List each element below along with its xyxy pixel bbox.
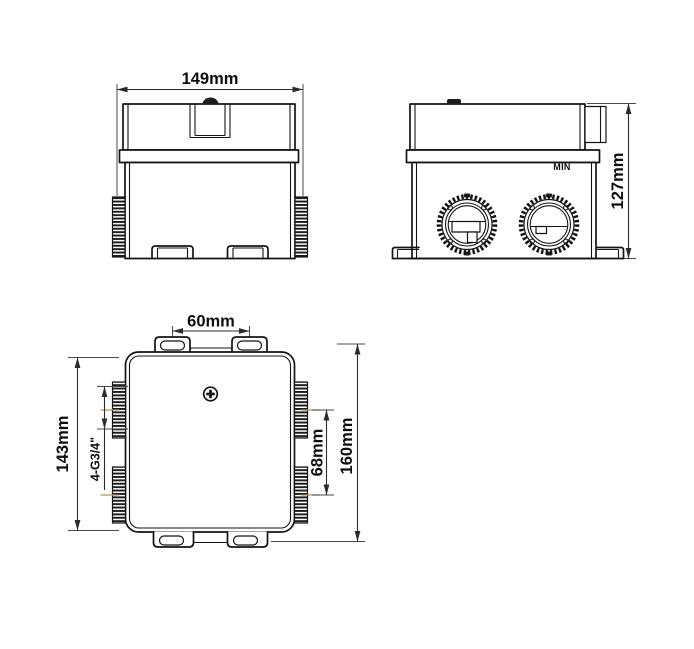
plan-view: 60mm xyxy=(54,313,365,548)
gland-detail xyxy=(452,222,480,233)
lid-hinge-block xyxy=(585,107,606,143)
lid-latch-icon xyxy=(447,99,461,105)
plan-box-outer xyxy=(126,352,295,532)
front-width-label: 149mm xyxy=(182,70,239,88)
lid-rim xyxy=(120,150,299,163)
overall-height-label: 160mm xyxy=(338,418,356,475)
gland-detail xyxy=(468,232,478,243)
lid-rim xyxy=(407,150,600,163)
mounting-slot xyxy=(161,341,185,350)
tab-spacing-label: 60mm xyxy=(187,313,235,331)
mounting-slot xyxy=(160,536,184,545)
body-height-label: 143mm xyxy=(54,416,72,473)
body-height-dimension: 143mm xyxy=(54,358,119,531)
side-lid xyxy=(410,104,585,150)
front-body xyxy=(125,163,295,259)
thread-label: 4-G3/4" xyxy=(89,437,103,481)
phillips-screw-icon xyxy=(204,387,218,401)
gland-spacing-dimension: 68mm xyxy=(309,410,335,495)
lid-screw-cap-icon xyxy=(203,98,219,105)
knurled-gland-edge xyxy=(295,197,308,257)
junction-box-drawing: 149mm xyxy=(0,0,694,649)
bottom-ledge xyxy=(194,532,228,543)
side-view: 127mm MIN xyxy=(393,99,637,259)
gland-detail xyxy=(536,227,547,234)
mounting-slot xyxy=(234,536,258,545)
technical-drawing-page: 149mm xyxy=(0,0,694,649)
mounting-slot xyxy=(238,341,262,350)
screw-cross xyxy=(206,393,215,396)
min-marking-label: MIN xyxy=(553,162,570,172)
gland-ring xyxy=(524,200,574,250)
side-height-label: 127mm xyxy=(609,153,627,210)
gland-spacing-label: 68mm xyxy=(309,429,327,477)
knurled-gland-edge xyxy=(113,197,126,257)
front-lid xyxy=(123,104,295,150)
side-foot xyxy=(597,248,624,259)
front-view: 149mm xyxy=(113,70,308,259)
